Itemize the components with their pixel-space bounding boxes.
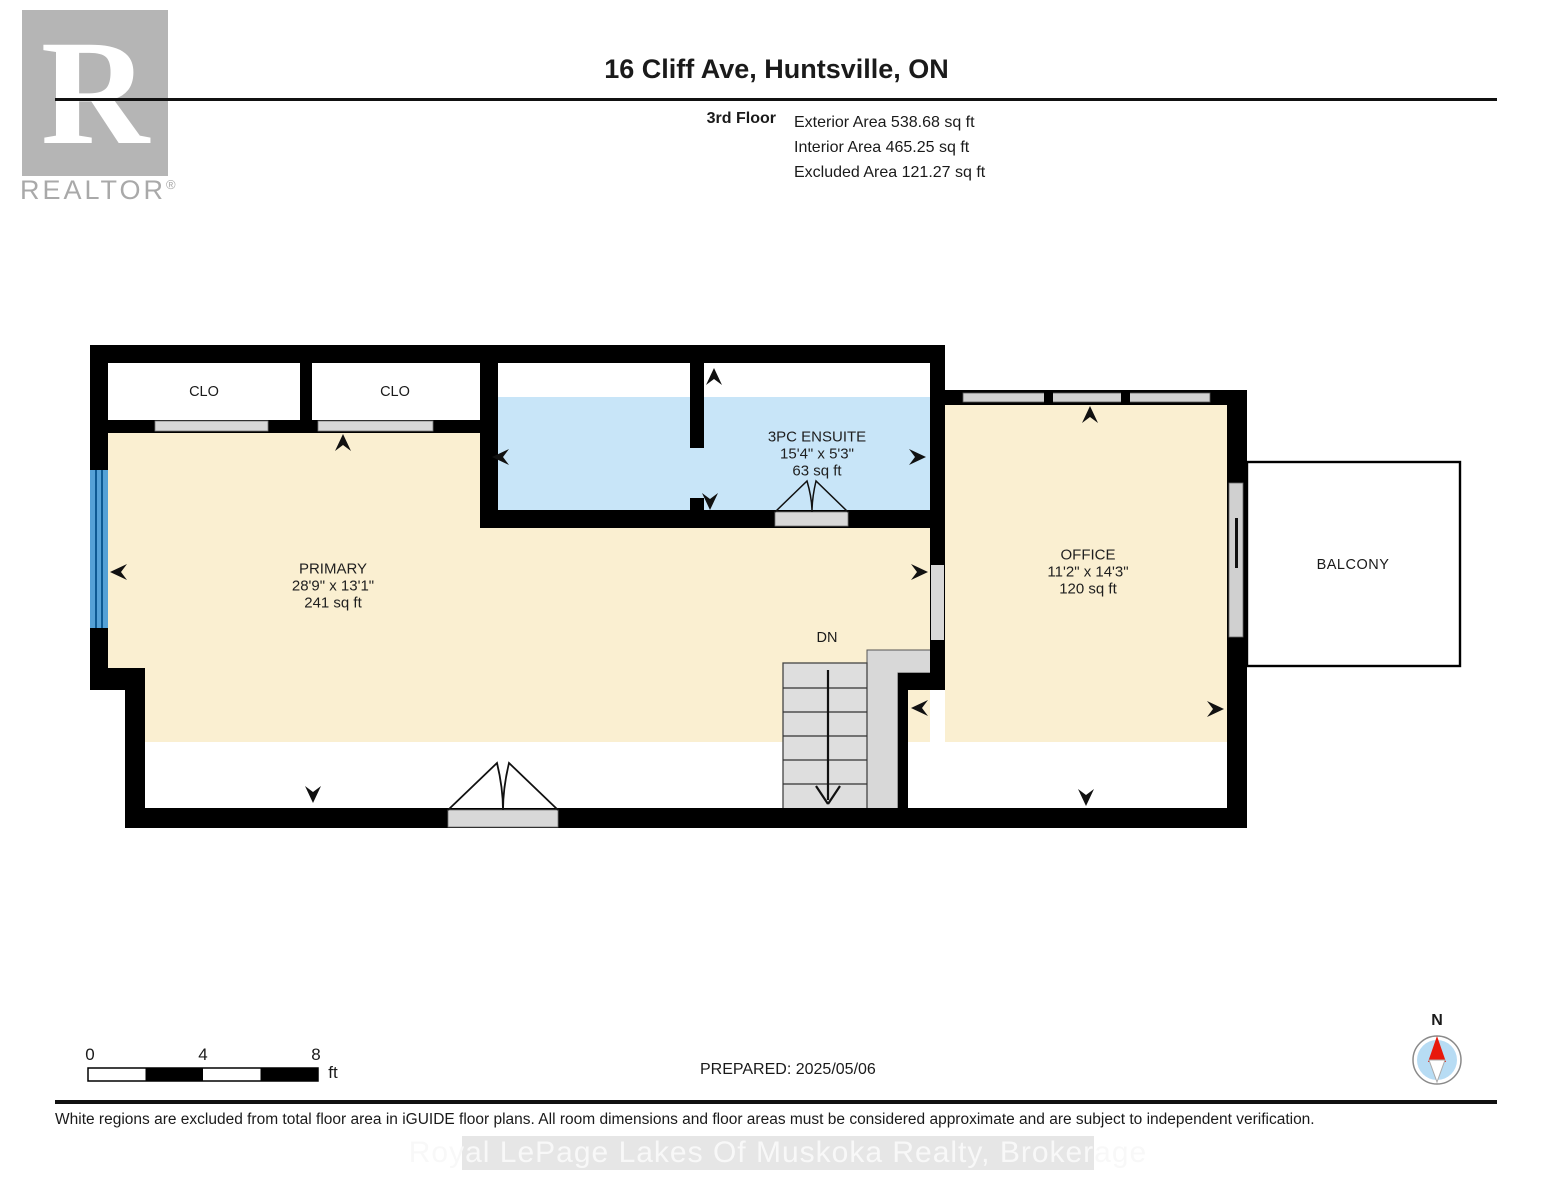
stairs-down-label: DN: [817, 630, 838, 646]
office-name: OFFICE: [1047, 549, 1128, 562]
floorplan-drawing: [0, 0, 1553, 1200]
entry-door-sill: [448, 810, 558, 827]
office-room-label: OFFICE 11'2" x 14'3" 120 sq ft: [1047, 549, 1128, 600]
disclaimer-text: White regions are excluded from total fl…: [55, 1111, 1315, 1129]
compass-rose: [1413, 1036, 1461, 1084]
office-dims: 11'2" x 14'3": [1047, 566, 1128, 579]
brokerage-watermark-text: Royal LePage Lakes Of Muskoka Realty, Br…: [409, 1136, 1147, 1170]
ensuite-area: 63 sq ft: [768, 465, 866, 478]
brokerage-watermark: Royal LePage Lakes Of Muskoka Realty, Br…: [462, 1136, 1094, 1170]
closet-door-right: [318, 421, 433, 431]
entry-door-swing: [448, 763, 558, 810]
scale-unit: ft: [328, 1063, 337, 1083]
scale-bar: [88, 1068, 318, 1081]
ensuite-dims: 15'4" x 5'3": [768, 448, 866, 461]
window-left-wall: [90, 470, 108, 628]
office-window: [963, 393, 1210, 402]
closet-label-1: CLO: [189, 384, 219, 400]
ensuite-door-sill: [775, 512, 848, 526]
floorplan-page: R REALTOR® 16 Cliff Ave, Huntsville, ON …: [0, 0, 1553, 1200]
primary-name: PRIMARY: [292, 563, 374, 576]
office-area: 120 sq ft: [1047, 583, 1128, 596]
primary-room-label: PRIMARY 28'9" x 13'1" 241 sq ft: [292, 563, 374, 614]
scale-tick-0: 0: [85, 1045, 94, 1065]
office-window-mullion-1: [1044, 390, 1053, 405]
primary-office-door-opening: [931, 565, 944, 640]
closet-door-left: [155, 421, 268, 431]
ensuite-room-label: 3PC ENSUITE 15'4" x 5'3" 63 sq ft: [768, 431, 866, 482]
balcony-sliding-door-leaf: [1235, 518, 1238, 568]
primary-dims: 28'9" x 13'1": [292, 580, 374, 593]
scale-tick-8: 8: [311, 1045, 320, 1065]
scale-tick-4: 4: [198, 1045, 207, 1065]
compass-north-label: N: [1431, 1012, 1443, 1030]
arrow-down-entry: [305, 786, 321, 803]
balcony-label: BALCONY: [1317, 557, 1390, 573]
arrow-down-office: [1078, 789, 1094, 806]
closet-label-2: CLO: [380, 384, 410, 400]
office-window-mullion-2: [1121, 390, 1130, 405]
ensuite-name: 3PC ENSUITE: [768, 431, 866, 444]
primary-area: 241 sq ft: [292, 597, 374, 610]
